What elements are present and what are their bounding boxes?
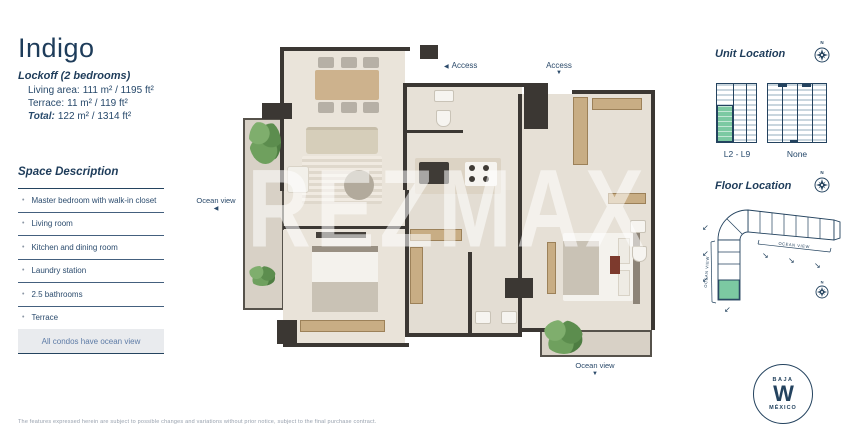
list-item: Kitchen and dining room — [18, 236, 164, 260]
floor-wing-top — [748, 210, 834, 240]
plant — [248, 266, 276, 286]
burner-icon — [483, 176, 489, 182]
terrace-area-label: Terrace: — [28, 98, 64, 109]
wall — [651, 90, 655, 330]
ocean-arrow-icon: ↘ — [814, 261, 821, 270]
living-area-label: Living area: — [28, 85, 80, 96]
wall — [403, 83, 407, 190]
bathroom-sink — [475, 311, 491, 324]
tv-console — [316, 232, 366, 238]
roof-notch — [802, 84, 811, 87]
access-left-label: ◀Access — [444, 61, 477, 71]
dining-chair — [341, 57, 357, 68]
plant — [543, 320, 583, 354]
wardrobe — [592, 98, 642, 110]
grid-divider — [797, 84, 798, 142]
wall — [405, 190, 409, 337]
list-item-label: Laundry station — [31, 266, 86, 275]
burner-icon — [483, 165, 489, 171]
bathroom-shelf — [608, 193, 646, 204]
ocean-view-left-label: Ocean view ◀ — [193, 197, 239, 213]
floor-wing-end — [834, 220, 840, 240]
list-item: Living room — [18, 213, 164, 237]
list-item-label: Kitchen and dining room — [31, 243, 117, 252]
space-description-heading: Space Description — [18, 166, 118, 178]
wall — [572, 90, 655, 94]
master-bed — [563, 233, 633, 301]
total-area-label: Total: — [28, 111, 55, 122]
shower-block — [505, 278, 533, 298]
dining-chair — [341, 102, 357, 113]
ocean-arrow-icon: ↙ — [702, 223, 709, 232]
ocean-view-note-label: All condos have ocean view — [42, 337, 141, 346]
compass-icon: N — [811, 168, 833, 196]
ocean-view-label-text: Ocean view — [575, 361, 614, 370]
wall — [468, 252, 472, 335]
dining-chair — [363, 57, 379, 68]
wall — [283, 226, 407, 229]
unit-type-subtitle: Lockoff (2 bedrooms) — [18, 70, 130, 82]
compass-n-label: N — [820, 170, 823, 175]
wall — [262, 103, 292, 119]
access-label-text: Access — [452, 61, 478, 70]
list-item-label: Living room — [31, 219, 72, 228]
terrace-area-value: 11 m² / 119 ft² — [67, 98, 128, 109]
kitchen-island — [415, 158, 501, 194]
bathroom-sink — [501, 311, 517, 324]
kitchen-counter — [573, 97, 588, 165]
page-title: Indigo — [18, 33, 95, 64]
wall — [280, 47, 284, 191]
burner-icon — [469, 176, 475, 182]
terrace-area-line: Terrace:11 m² / 119 ft² — [28, 98, 128, 109]
compass-icon: N — [816, 280, 828, 299]
compass-n-label: N — [820, 40, 823, 45]
grid-divider — [812, 84, 813, 142]
wall — [405, 130, 463, 133]
coffee-table — [344, 170, 374, 200]
wall — [518, 94, 522, 334]
brand-logo: BAJA W MÉXICO — [753, 364, 813, 424]
closet-shelf — [410, 229, 462, 241]
dining-chair — [363, 102, 379, 113]
highlighted-floors — [717, 105, 733, 142]
ocean-arrow-icon: ↘ — [762, 251, 769, 260]
bedroom-bench — [300, 320, 385, 332]
list-item-label: Terrace — [31, 313, 58, 322]
ocean-arrow-icon: ↙ — [702, 275, 709, 284]
headboard — [312, 246, 378, 252]
page: Indigo Lockoff (2 bedrooms) Living area:… — [0, 0, 848, 438]
triangle-left-icon: ◀ — [193, 206, 239, 213]
list-item: Laundry station — [18, 260, 164, 284]
wall-column — [277, 320, 297, 344]
wall — [405, 333, 522, 337]
building-b-label: None — [772, 149, 822, 159]
roof-notch — [778, 84, 787, 87]
sofa — [306, 127, 378, 154]
bed-blanket — [563, 241, 599, 295]
bed-blanket — [312, 282, 378, 312]
total-area-value: 122 m² / 1314 ft² — [58, 111, 131, 122]
highlighted-unit — [719, 280, 739, 299]
access-top-label: Access ▼ — [542, 61, 576, 77]
disclaimer-text: The features expressed herein are subjec… — [18, 419, 376, 425]
plant — [249, 120, 281, 164]
floor-plate-diagram: OCEAN VIEW OCEAN VIEW ↙ ↙ ↙ ↙ ↘ ↘ ↘ N — [702, 196, 842, 314]
dining-chair — [318, 102, 334, 113]
list-item: Master bedroom with walk-in closet — [18, 189, 164, 213]
logo-mark: W — [773, 383, 793, 405]
dining-chair — [318, 57, 334, 68]
bathroom-sink — [434, 90, 454, 102]
burner-icon — [469, 165, 475, 171]
access-label-text: Access — [546, 61, 572, 70]
building-elevation-b — [767, 83, 827, 143]
grid-divider — [746, 84, 747, 142]
armchair — [287, 166, 309, 193]
ocean-arrow-icon: ↘ — [788, 256, 795, 265]
toilet — [436, 110, 451, 127]
unit-location-heading: Unit Location — [715, 48, 785, 60]
triangle-down-icon: ▼ — [570, 371, 620, 378]
logo-bottom-label: MÉXICO — [769, 405, 797, 411]
floor-location-heading: Floor Location — [715, 180, 791, 192]
bed-bench — [547, 242, 556, 294]
list-item-label: 2.5 bathrooms — [31, 290, 82, 299]
wall — [283, 343, 409, 347]
space-description-list: Master bedroom with walk-in closet Livin… — [18, 188, 164, 330]
ocean-view-note: All condos have ocean view — [18, 329, 164, 354]
living-area-value: 111 m² / 1195 ft² — [83, 85, 154, 96]
list-item: Terrace — [18, 307, 164, 331]
list-item: 2.5 bathrooms — [18, 283, 164, 307]
base-notch — [790, 140, 798, 142]
wall-column — [420, 45, 438, 59]
bathroom-sink — [630, 220, 646, 233]
second-bed — [312, 250, 378, 312]
ocean-view-label-text: Ocean view — [196, 196, 235, 205]
living-area-line: Living area:111 m² / 1195 ft² — [28, 85, 154, 96]
list-item-label: Master bedroom with walk-in closet — [31, 196, 156, 205]
compass-n-label: N — [821, 280, 824, 285]
triangle-left-icon: ◀ — [444, 64, 449, 70]
laundry-closet — [524, 87, 548, 129]
headboard — [633, 230, 640, 304]
building-a-label: L2 - L9 — [712, 149, 762, 159]
toilet — [632, 246, 647, 262]
total-area-line: Total:122 m² / 1314 ft² — [28, 111, 131, 122]
building-elevation-a — [716, 83, 757, 143]
grid-divider — [782, 84, 783, 142]
ocean-view-bottom-label: Ocean view ▼ — [570, 362, 620, 378]
stove-plate — [465, 162, 497, 186]
compass-icon: N — [811, 38, 833, 66]
triangle-down-icon: ▼ — [542, 70, 576, 77]
accent-pillow — [610, 256, 620, 274]
ocean-arrow-icon: ↙ — [724, 305, 731, 314]
ocean-arrow-icon: ↙ — [702, 249, 709, 258]
grid-divider — [733, 84, 734, 142]
dining-table — [315, 70, 379, 100]
wall — [280, 47, 410, 51]
closet-shelf — [410, 247, 423, 304]
kitchen-sink — [419, 162, 449, 184]
